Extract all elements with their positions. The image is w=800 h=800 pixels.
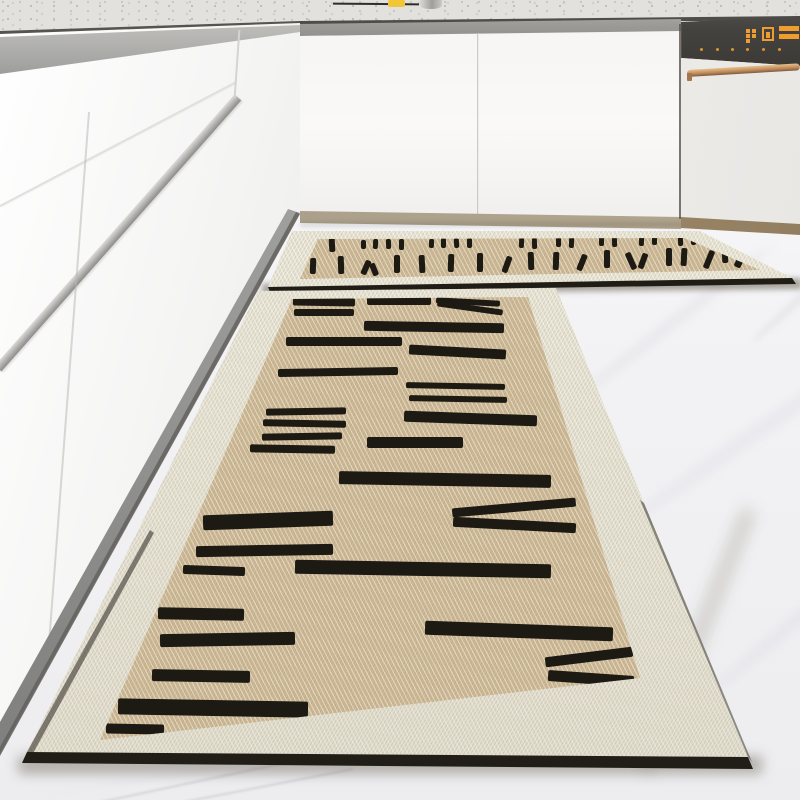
mat-pattern-bar — [404, 411, 537, 427]
panel-button-dot — [778, 48, 781, 51]
mat-pattern-bar — [278, 367, 398, 377]
mat-pattern-bar — [338, 256, 345, 274]
cabinet-door-seam — [477, 33, 479, 214]
panel-button-dot — [746, 48, 749, 51]
mat-pattern-bar — [448, 254, 455, 272]
kitchen-scene — [0, 0, 800, 800]
mat-pattern-bar — [576, 253, 588, 271]
box-display-icon — [762, 27, 774, 41]
mat-pattern-bar — [703, 250, 716, 270]
mat-pattern-bar — [203, 511, 333, 531]
mat-pattern-bar — [250, 444, 335, 453]
mat-pattern-bar — [569, 237, 574, 248]
mat-pattern-bar — [369, 262, 379, 276]
mat-pattern-bar — [339, 471, 551, 488]
marble-vein — [623, 345, 800, 529]
panel-button-dot — [700, 48, 703, 51]
mat-pattern-bar — [419, 255, 426, 273]
mat-pattern-bar — [441, 238, 446, 248]
mat-pattern-bar — [386, 239, 391, 249]
panel-button-dot — [731, 48, 734, 51]
mat-pattern-bar — [310, 258, 317, 274]
mat-pattern-bar — [118, 698, 308, 717]
mat-pattern-bar — [106, 723, 164, 734]
mat-pattern-bar — [452, 498, 576, 518]
mat-pattern-bar — [406, 382, 505, 390]
mat-pattern-bar — [409, 344, 506, 359]
panel-button-dot — [762, 48, 765, 51]
mat-pattern-bar — [295, 560, 551, 578]
panel-button-dot — [716, 48, 719, 51]
mat-pattern-bar — [429, 239, 434, 248]
mat-pattern-bar — [262, 432, 342, 440]
mat-pattern-bar — [394, 255, 400, 273]
mat-pattern-bar — [152, 669, 250, 683]
mat-pattern-bar — [160, 632, 295, 647]
mat-pattern-bar — [556, 237, 561, 247]
mat-pattern-bar — [553, 252, 560, 270]
mat-pattern-bar — [373, 239, 379, 249]
mat-pattern-bar — [528, 252, 535, 270]
mat-pattern-bar — [467, 238, 472, 248]
mat-pattern-bar — [454, 238, 460, 248]
mat-pattern-bar — [367, 437, 463, 448]
mat-pattern-bar — [519, 238, 524, 248]
mat-pattern-bar — [294, 309, 354, 316]
mat-pattern-bar — [361, 240, 366, 249]
mat-pattern-bar — [263, 419, 346, 427]
mat-pattern-bar — [453, 517, 576, 533]
sponge — [388, 0, 405, 7]
dots-display-icon — [746, 29, 750, 33]
mat-pattern-bar — [329, 238, 336, 252]
mat-pattern-bar — [477, 253, 483, 272]
mat-pattern-bar — [666, 248, 672, 266]
mat-pattern-bar — [625, 252, 638, 271]
seg-display-icon — [779, 26, 799, 39]
mat-pattern-bar — [545, 647, 634, 668]
mat-pattern-bar — [266, 407, 346, 415]
dishwasher-handle-bracket — [687, 73, 692, 81]
mat-pattern-bar — [425, 621, 613, 642]
mat-pattern-bar — [196, 544, 333, 557]
mat-pattern-bar — [604, 250, 610, 268]
mat-pattern-bar — [409, 395, 507, 403]
faucet-base — [420, 0, 442, 9]
mat-pattern-bar — [532, 238, 537, 249]
mat-pattern-bar — [364, 321, 504, 333]
mat-pattern-bar — [681, 248, 688, 266]
mat-pattern-bar — [399, 239, 404, 250]
mat-pattern-bar — [286, 337, 402, 346]
mat-pattern-bar — [501, 255, 512, 273]
mat-pattern-bar — [183, 565, 245, 576]
mat-pattern-bar — [637, 252, 648, 269]
mat-pattern-bar — [158, 607, 244, 620]
